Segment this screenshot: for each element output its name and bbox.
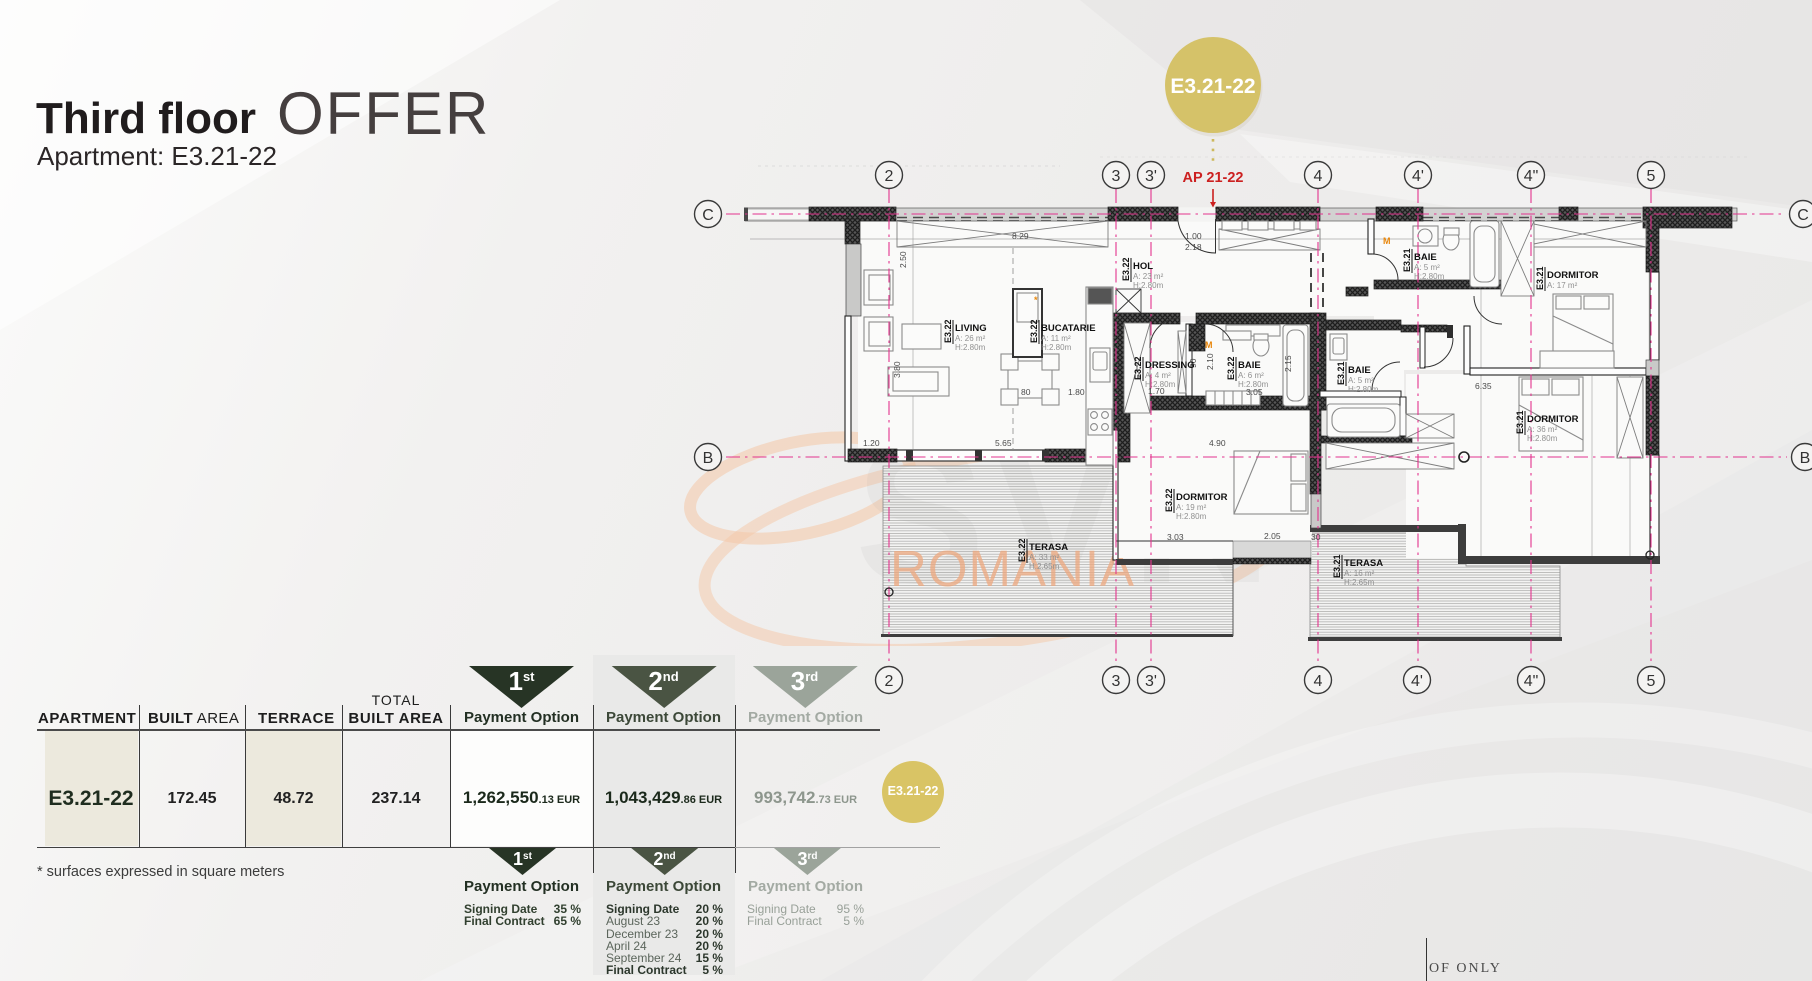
svg-text:A: 17 m²: A: 17 m²: [1547, 281, 1578, 290]
svg-text:AP 21-22: AP 21-22: [1183, 170, 1244, 186]
svg-text:E3.22: E3.22: [1226, 356, 1236, 380]
svg-text:BAIE: BAIE: [1414, 252, 1437, 263]
svg-text:2.05: 2.05: [1264, 531, 1281, 541]
svg-text:2: 2: [885, 168, 894, 185]
svg-text:A: 5 m²: A: 5 m²: [1348, 376, 1374, 385]
svg-text:DRESSING: DRESSING: [1145, 360, 1195, 371]
svg-text:E3.22: E3.22: [943, 319, 953, 343]
svg-text:3.03: 3.03: [1167, 532, 1184, 542]
svg-text:B: B: [703, 450, 714, 467]
svg-text:A: 11 m²: A: 11 m²: [1041, 334, 1071, 343]
svg-text:*: *: [1034, 295, 1038, 305]
svg-text:E3.21: E3.21: [1336, 361, 1346, 385]
svg-text:M: M: [1205, 340, 1213, 350]
svg-text:H:2.80m: H:2.80m: [1145, 380, 1176, 389]
svg-text:C: C: [702, 207, 714, 224]
svg-text:BUCATARIE: BUCATARIE: [1041, 323, 1096, 334]
svg-text:A: 5 m²: A: 5 m²: [1414, 263, 1440, 272]
svg-text:A: 6 m²: A: 6 m²: [1238, 371, 1264, 380]
svg-text:6.35: 6.35: [1475, 381, 1492, 391]
svg-text:3': 3': [1145, 168, 1157, 185]
svg-text:4': 4': [1411, 673, 1423, 690]
svg-text:A: 36 m²: A: 36 m²: [1527, 425, 1558, 434]
svg-text:80: 80: [1021, 387, 1031, 397]
svg-text:4': 4': [1412, 168, 1424, 185]
svg-text:E3.21: E3.21: [1515, 410, 1525, 434]
svg-text:70: 70: [1193, 334, 1203, 344]
svg-text:1.20: 1.20: [863, 438, 880, 448]
svg-text:DORMITOR: DORMITOR: [1176, 492, 1228, 503]
svg-text:A: 26 m²: A: 26 m²: [955, 334, 986, 343]
svg-text:2.18: 2.18: [1185, 242, 1202, 252]
svg-text:H:2.80m: H:2.80m: [1176, 512, 1207, 521]
svg-text:A: 33 m²: A: 33 m²: [1029, 553, 1060, 562]
svg-text:E3.21: E3.21: [1535, 266, 1545, 290]
svg-text:5: 5: [1647, 673, 1656, 690]
svg-text:DORMITOR: DORMITOR: [1547, 270, 1599, 281]
svg-text:1.80: 1.80: [1068, 387, 1085, 397]
svg-text:4": 4": [1524, 673, 1539, 690]
svg-text:DORMITOR: DORMITOR: [1527, 414, 1579, 425]
svg-text:30: 30: [1311, 532, 1321, 542]
svg-text:3: 3: [1112, 673, 1121, 690]
svg-text:A: 4 m²: A: 4 m²: [1145, 371, 1171, 380]
svg-text:H:2.80m: H:2.80m: [1527, 434, 1558, 443]
svg-text:E3.21: E3.21: [1402, 248, 1412, 272]
svg-text:E3.22: E3.22: [1121, 257, 1131, 281]
svg-text:5: 5: [1647, 168, 1656, 185]
svg-text:E3.21: E3.21: [1332, 554, 1342, 578]
svg-text:M: M: [1383, 236, 1391, 246]
svg-text:H:2.80m: H:2.80m: [1348, 385, 1379, 394]
svg-text:A: 23 m²: A: 23 m²: [1133, 272, 1164, 281]
svg-text:A: 19 m²: A: 19 m²: [1176, 503, 1207, 512]
svg-text:4": 4": [1524, 168, 1539, 185]
svg-text:E3.21-22: E3.21-22: [1170, 75, 1255, 98]
svg-text:2.15: 2.15: [1283, 355, 1293, 372]
svg-text:E3.22: E3.22: [1133, 356, 1143, 380]
svg-text:H:2.80m: H:2.80m: [1041, 343, 1072, 352]
svg-text:2.10: 2.10: [1205, 353, 1215, 370]
svg-text:4.90: 4.90: [1209, 438, 1226, 448]
svg-text:5.65: 5.65: [995, 438, 1012, 448]
svg-text:BAIE: BAIE: [1348, 365, 1371, 376]
svg-text:H:2.80m: H:2.80m: [955, 343, 986, 352]
svg-text:H:2.80m: H:2.80m: [1414, 272, 1445, 281]
svg-text:8.29: 8.29: [1012, 231, 1029, 241]
svg-text:LIVING: LIVING: [955, 323, 987, 334]
svg-text:H:2.80m: H:2.80m: [1133, 281, 1164, 290]
svg-text:2.50: 2.50: [898, 251, 908, 268]
svg-text:H:2.80m: H:2.80m: [1238, 380, 1269, 389]
svg-text:2: 2: [885, 673, 894, 690]
svg-text:E3.22: E3.22: [1164, 488, 1174, 512]
svg-text:ROMANIA: ROMANIA: [890, 540, 1135, 597]
svg-text:BAIE: BAIE: [1238, 360, 1261, 371]
svg-text:1.00: 1.00: [1185, 231, 1202, 241]
svg-text:HOL: HOL: [1133, 261, 1153, 272]
svg-text:B: B: [1800, 450, 1811, 467]
svg-text:C: C: [1797, 207, 1809, 224]
svg-text:E3.22: E3.22: [1029, 319, 1039, 343]
svg-text:3.80: 3.80: [892, 361, 902, 378]
svg-text:TERASA: TERASA: [1029, 542, 1068, 553]
svg-text:H:2.65m: H:2.65m: [1344, 578, 1375, 587]
svg-text:H:2.65m: H:2.65m: [1029, 562, 1060, 571]
svg-text:E3.22: E3.22: [1017, 538, 1027, 562]
svg-text:3': 3': [1145, 673, 1157, 690]
svg-text:TERASA: TERASA: [1344, 558, 1383, 569]
svg-text:A: 16 m²: A: 16 m²: [1344, 569, 1375, 578]
svg-text:3: 3: [1112, 168, 1121, 185]
svg-text:4: 4: [1314, 673, 1323, 690]
svg-text:4: 4: [1314, 168, 1323, 185]
